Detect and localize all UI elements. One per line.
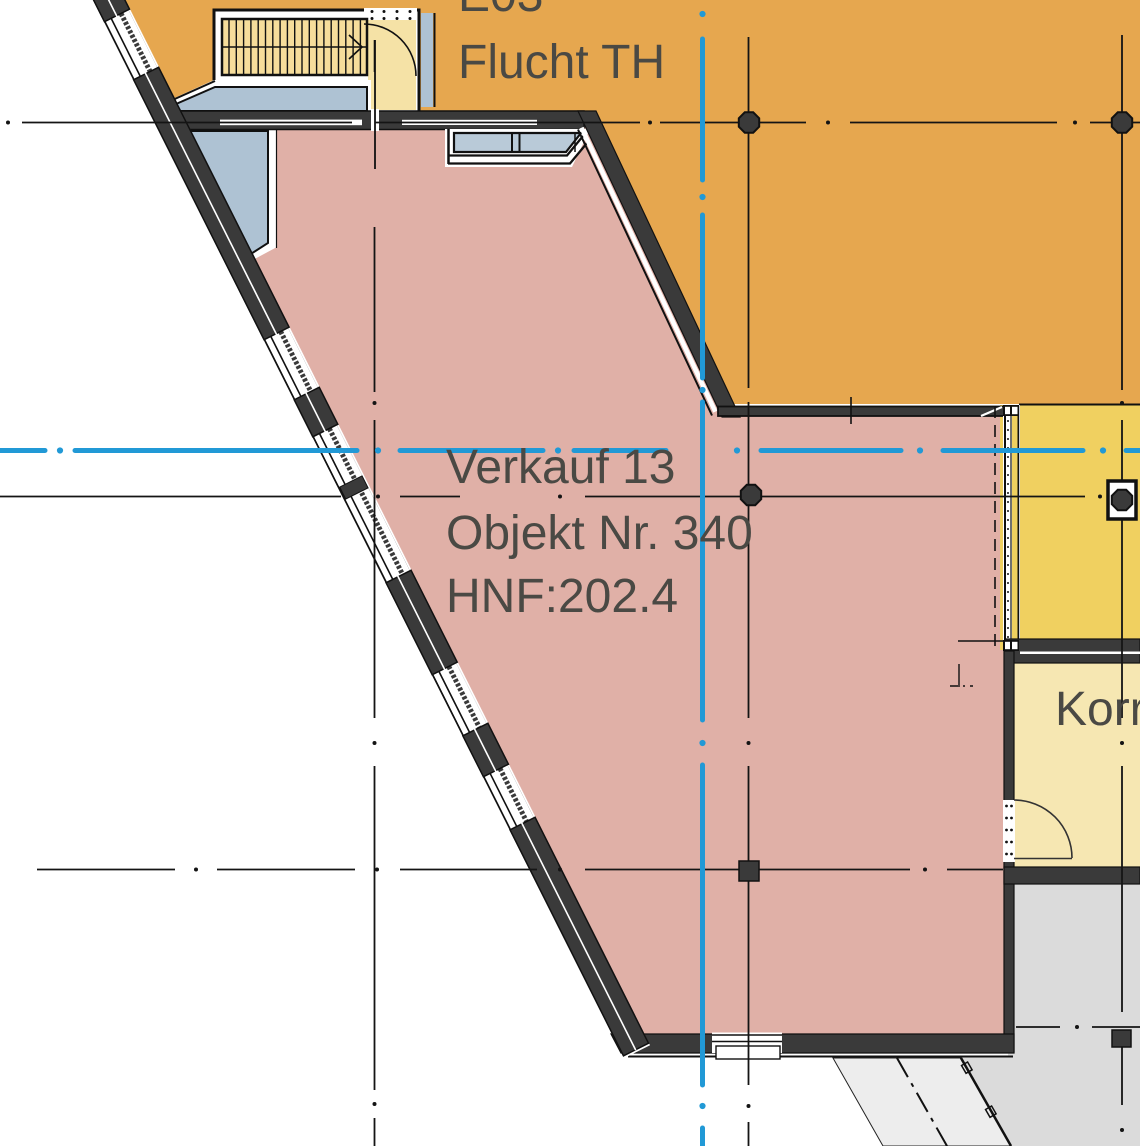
svg-text:Verkauf 13: Verkauf 13 bbox=[446, 441, 676, 494]
svg-text:Korridor: Korridor bbox=[1055, 683, 1140, 736]
svg-text:HNF:202.4: HNF:202.4 bbox=[446, 570, 678, 623]
svg-text:Flucht TH: Flucht TH bbox=[458, 36, 665, 89]
svg-text:Objekt Nr. 340: Objekt Nr. 340 bbox=[446, 507, 753, 560]
svg-text:E03: E03 bbox=[458, 0, 543, 22]
